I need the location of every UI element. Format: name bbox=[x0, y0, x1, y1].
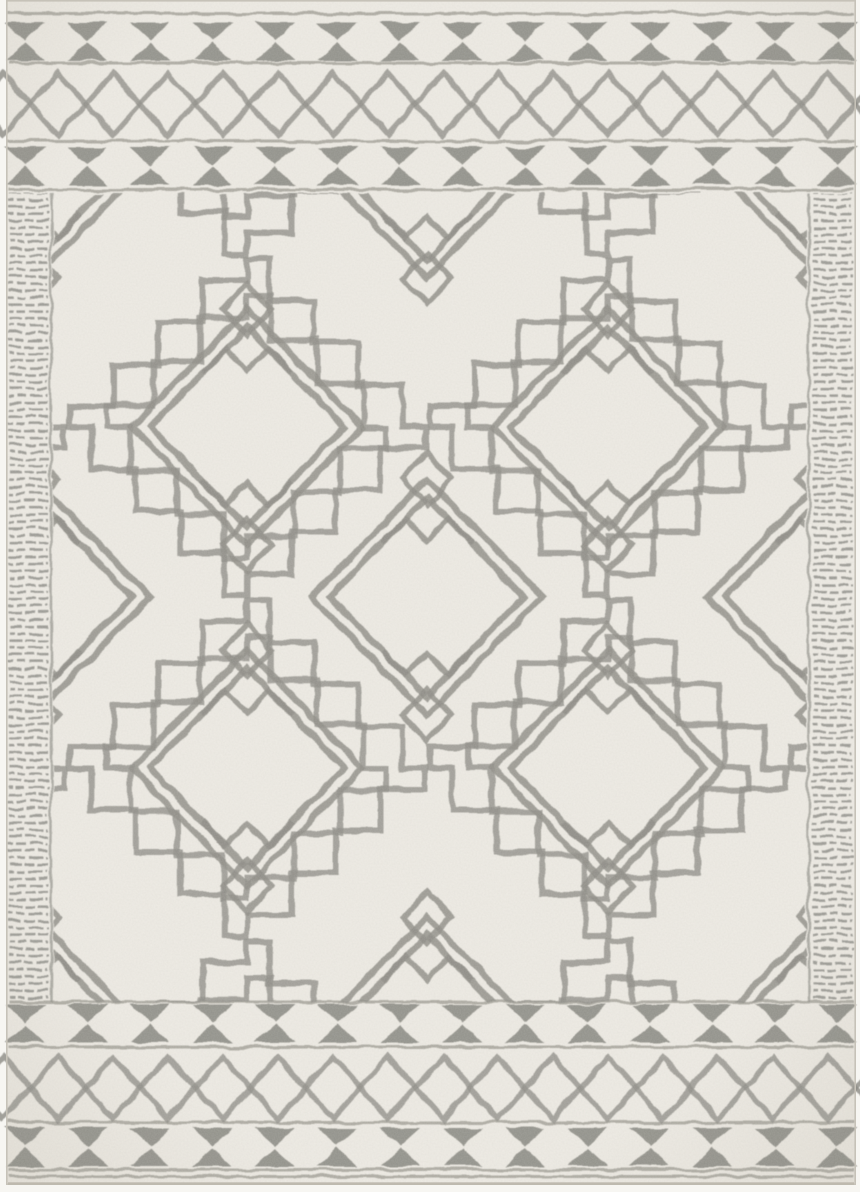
rug-image bbox=[0, 0, 860, 1192]
grain-overlay bbox=[6, 0, 856, 1185]
rug-product-photo bbox=[0, 0, 860, 1192]
